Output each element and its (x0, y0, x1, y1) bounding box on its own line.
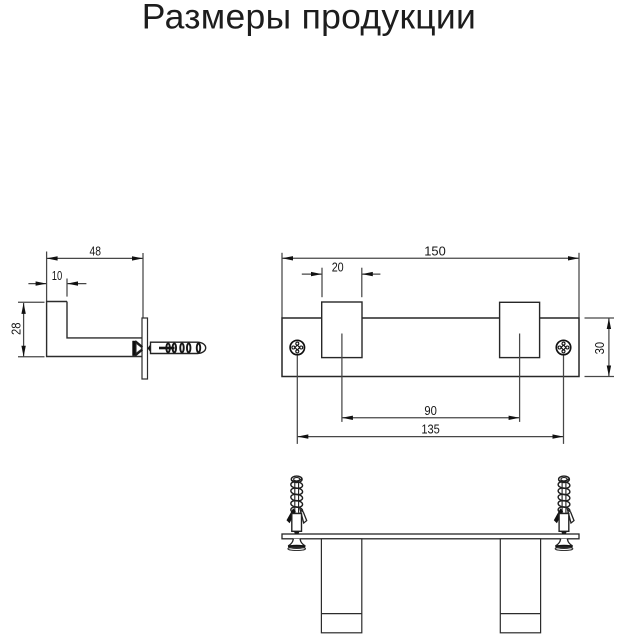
svg-text:20: 20 (332, 260, 344, 275)
svg-text:48: 48 (90, 244, 102, 259)
svg-text:135: 135 (421, 421, 440, 436)
svg-text:30: 30 (592, 342, 607, 355)
svg-text:150: 150 (424, 244, 446, 259)
svg-text:28: 28 (9, 323, 24, 336)
svg-text:10: 10 (52, 268, 63, 283)
svg-text:90: 90 (424, 403, 437, 418)
